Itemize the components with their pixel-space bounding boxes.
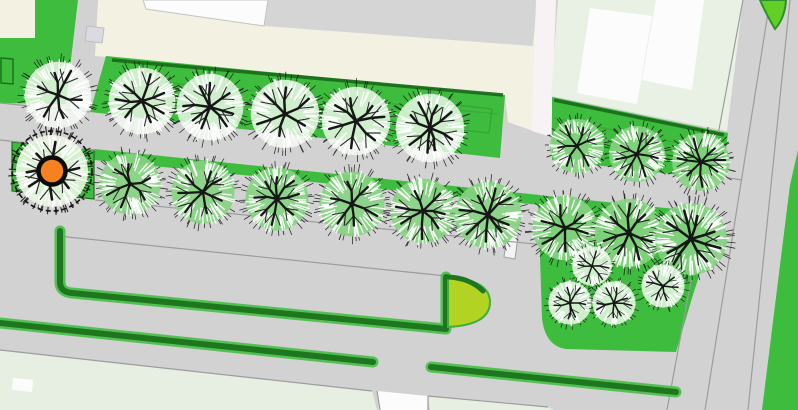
tree-trunk [349, 201, 354, 206]
tree-trunk [612, 301, 615, 304]
tree-trunk [635, 152, 639, 156]
tree-trunk [427, 125, 432, 130]
corner-plot-cream [0, 0, 35, 38]
tree-trunk [699, 160, 703, 164]
tree-trunk [661, 284, 664, 287]
tree-trunk [626, 230, 631, 235]
tree-trunk [485, 212, 490, 217]
tree-trunk [353, 118, 358, 123]
tree-trunk [688, 236, 694, 242]
map-canvas [0, 0, 798, 410]
tree-trunk [568, 301, 571, 304]
tree-trunk [128, 182, 133, 187]
tree-trunk [282, 111, 287, 116]
gray-square-topleft [85, 26, 104, 43]
tree-trunk [420, 208, 425, 213]
tree-trunk [275, 197, 280, 202]
tree-trunk [55, 92, 60, 97]
white-slab-bottomleft [12, 378, 33, 392]
map-viewport[interactable] [0, 0, 798, 410]
tree-trunk [575, 144, 579, 148]
selected-tree-marker[interactable] [39, 158, 66, 185]
tree-trunk [139, 98, 144, 103]
tree-trunk [562, 225, 567, 230]
tree-trunk [207, 104, 212, 109]
tree-trunk [201, 190, 206, 195]
tree-trunk [590, 264, 593, 267]
